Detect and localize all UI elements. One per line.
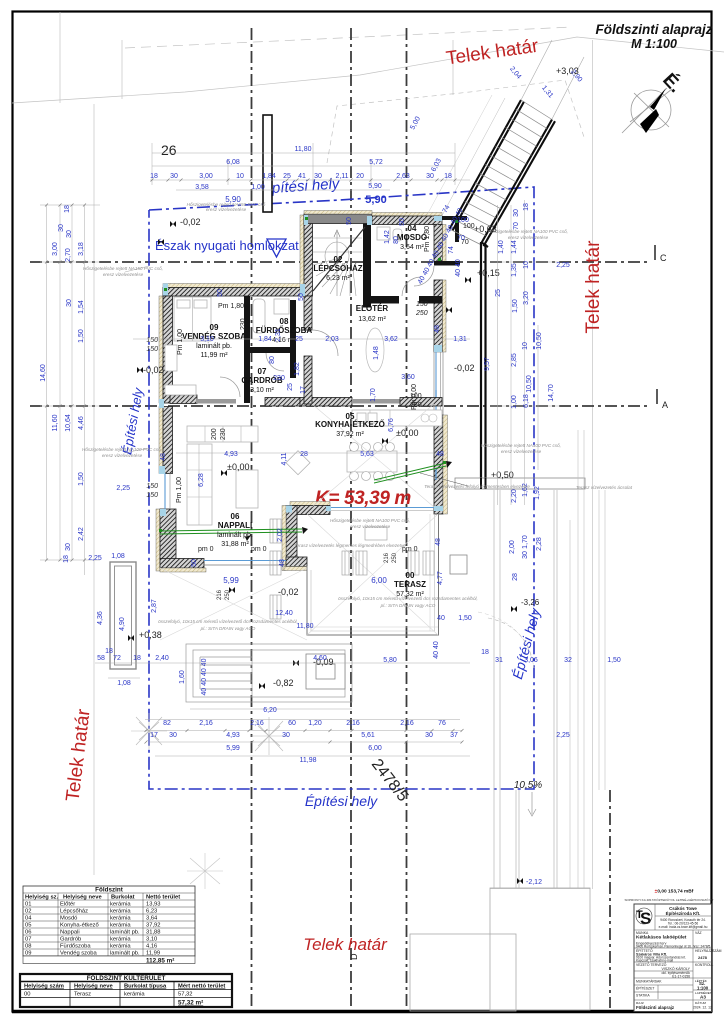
svg-text:10,5%: 10,5% xyxy=(514,780,542,791)
svg-text:eresz vízelvezetése: eresz vízelvezetése xyxy=(508,235,549,240)
svg-text:3,10 m²: 3,10 m² xyxy=(250,387,274,394)
svg-text:2,31: 2,31 xyxy=(275,328,282,342)
svg-text:Nettó terület: Nettó terület xyxy=(146,895,180,901)
svg-text:76: 76 xyxy=(438,720,446,727)
svg-text:ÉPÍTÉSZET: ÉPÍTÉSZET xyxy=(636,986,654,991)
svg-text:6,00: 6,00 xyxy=(368,745,382,752)
svg-text:1,40: 1,40 xyxy=(498,240,505,254)
svg-text:48: 48 xyxy=(279,559,286,567)
svg-text:10,50: 10,50 xyxy=(526,375,533,393)
svg-text:26: 26 xyxy=(161,142,177,158)
svg-text:2,63: 2,63 xyxy=(396,173,410,180)
svg-text:37: 37 xyxy=(450,732,458,739)
svg-text:FÜRDŐSZOBA: FÜRDŐSZOBA xyxy=(256,326,313,335)
svg-text:30: 30 xyxy=(170,173,178,180)
svg-text:kerámia: kerámia xyxy=(110,902,131,908)
svg-text:-0,02: -0,02 xyxy=(278,587,299,597)
svg-text:1,70: 1,70 xyxy=(522,535,529,549)
svg-text:48: 48 xyxy=(434,325,441,333)
svg-text:2,16: 2,16 xyxy=(250,720,264,727)
svg-text:00: 00 xyxy=(24,992,30,998)
svg-text:10: 10 xyxy=(523,261,530,269)
svg-text:TERASZ: TERASZ xyxy=(394,580,426,589)
svg-text:74: 74 xyxy=(448,246,455,254)
svg-text:06: 06 xyxy=(231,512,240,521)
svg-text:48: 48 xyxy=(160,453,167,461)
svg-text:kerámia: kerámia xyxy=(110,909,131,915)
svg-text:4,60: 4,60 xyxy=(313,655,327,662)
svg-text:Nappali: Nappali xyxy=(60,930,80,936)
svg-text:5,99: 5,99 xyxy=(226,745,240,752)
svg-text:1,50: 1,50 xyxy=(512,299,519,313)
svg-text:6,20: 6,20 xyxy=(263,707,277,714)
svg-text:+0,50: +0,50 xyxy=(491,470,514,480)
svg-text:150: 150 xyxy=(146,346,158,353)
svg-text:18: 18 xyxy=(444,173,452,180)
svg-text:Kapcsolt: szakhatni e-mail: Kapcsolt: szakhatni e-mail xyxy=(636,959,673,963)
svg-text:-3,26: -3,26 xyxy=(521,598,540,607)
svg-text:250: 250 xyxy=(410,402,422,409)
svg-text:41: 41 xyxy=(298,173,306,180)
svg-text:216: 216 xyxy=(384,552,390,563)
svg-text:Terasz vízelvezetés légmentes: Terasz vízelvezetés légmentes légmedrébe… xyxy=(294,543,406,548)
svg-text:48: 48 xyxy=(436,451,444,458)
svg-text:17: 17 xyxy=(150,732,158,739)
svg-text:+0,38: +0,38 xyxy=(139,630,162,640)
svg-text:100: 100 xyxy=(410,393,422,400)
svg-text:30: 30 xyxy=(425,732,433,739)
svg-text:57,32: 57,32 xyxy=(178,992,193,998)
svg-text:Hőszigetelésbe rejtett NA150 P: Hőszigetelésbe rejtett NA150 PVC cső, xyxy=(83,266,163,271)
svg-text:11,99 m²: 11,99 m² xyxy=(200,352,228,359)
svg-text:14,60: 14,60 xyxy=(40,364,47,382)
svg-text:4,90: 4,90 xyxy=(119,617,126,631)
svg-text:Terasz vízelvezetés ácsolat: Terasz vízelvezetés ácsolat xyxy=(576,485,633,490)
svg-text:30: 30 xyxy=(169,732,177,739)
svg-text:02: 02 xyxy=(25,909,31,915)
svg-text:VENDÉG SZOBA: VENDÉG SZOBA xyxy=(182,332,246,341)
svg-text:01: 01 xyxy=(25,902,31,908)
svg-text:KONTROLL: KONTROLL xyxy=(695,963,713,967)
svg-text:Észak nyugati homlokzat: Észak nyugati homlokzat xyxy=(155,238,299,253)
svg-text:12,40: 12,40 xyxy=(275,610,293,617)
svg-text:1,42: 1,42 xyxy=(384,230,391,244)
svg-text:18: 18 xyxy=(523,203,530,211)
svg-text:3,58: 3,58 xyxy=(195,184,209,191)
svg-text:eresz vízelvezetése: eresz vízelvezetése xyxy=(103,272,144,277)
svg-text:Pm 1,00: Pm 1,00 xyxy=(177,329,184,355)
svg-text:pm 0: pm 0 xyxy=(251,546,267,553)
svg-text:30: 30 xyxy=(65,543,72,551)
svg-text:6,18: 6,18 xyxy=(523,394,530,408)
svg-text:É1-17-0156: É1-17-0156 xyxy=(672,974,690,979)
svg-text:1,60: 1,60 xyxy=(179,670,186,684)
svg-text:82: 82 xyxy=(163,720,171,727)
svg-text:eresz vízelvezetése: eresz vízelvezetése xyxy=(501,449,542,454)
svg-text:50: 50 xyxy=(346,217,353,225)
svg-text:Terasz vízelvezetés lefolyó lé: Terasz vízelvezetés lefolyó légmentesben… xyxy=(424,484,530,489)
svg-text:6,00: 6,00 xyxy=(371,576,387,585)
svg-text:1,00: 1,00 xyxy=(511,395,518,409)
svg-text:Pm 1,80: Pm 1,80 xyxy=(424,226,431,252)
svg-text:18: 18 xyxy=(63,555,70,563)
svg-text:05: 05 xyxy=(25,923,31,929)
svg-text:11,80: 11,80 xyxy=(295,146,312,153)
svg-text:2,42: 2,42 xyxy=(78,527,85,541)
svg-text:07: 07 xyxy=(258,367,267,376)
svg-text:Hőszigetelésbe rejtett NA100 P: Hőszigetelésbe rejtett NA100 PVC cső, xyxy=(330,518,410,523)
svg-text:laminált pb.: laminált pb. xyxy=(110,951,140,957)
svg-text:Fürdőszoba: Fürdőszoba xyxy=(60,944,91,950)
svg-text:2,25: 2,25 xyxy=(556,262,570,269)
svg-text:Hőszigetelésbe rejtett NA100 P: Hőszigetelésbe rejtett NA100 PVC cső, xyxy=(488,229,568,234)
svg-text:230: 230 xyxy=(220,428,227,440)
svg-text:250: 250 xyxy=(225,589,231,600)
svg-text:4,11: 4,11 xyxy=(281,452,288,465)
svg-text:1,92: 1,92 xyxy=(534,486,541,500)
svg-text:48: 48 xyxy=(435,538,442,546)
svg-text:laminált pb.: laminált pb. xyxy=(217,532,253,539)
svg-text:150: 150 xyxy=(146,337,158,344)
svg-text:MUNKA: MUNKA xyxy=(636,931,649,935)
svg-text:30: 30 xyxy=(58,224,65,232)
svg-text:1,20: 1,20 xyxy=(308,720,322,727)
svg-text:Földszint: Földszint xyxy=(95,887,124,894)
svg-text:18: 18 xyxy=(64,205,71,213)
svg-text:-0,82: -0,82 xyxy=(273,678,294,688)
svg-text:KONYHA-ÉTKEZŐ: KONYHA-ÉTKEZŐ xyxy=(315,420,385,429)
svg-text:2,40: 2,40 xyxy=(155,655,169,662)
svg-text:6,28: 6,28 xyxy=(198,473,205,487)
svg-text:80: 80 xyxy=(393,236,400,244)
svg-text:2,25: 2,25 xyxy=(556,732,570,739)
svg-text:Pm 1,00: Pm 1,00 xyxy=(176,477,183,503)
svg-text:57,32 m²: 57,32 m² xyxy=(178,1000,203,1007)
svg-text:eresz vízelvezetése: eresz vízelvezetése xyxy=(102,453,143,458)
svg-text:5,72: 5,72 xyxy=(369,159,383,166)
svg-text:18: 18 xyxy=(150,173,158,180)
svg-text:2,25: 2,25 xyxy=(88,555,102,562)
svg-text:Mosdó: Mosdó xyxy=(60,916,77,922)
svg-text:72: 72 xyxy=(113,655,121,662)
svg-text:230: 230 xyxy=(240,318,247,330)
svg-text:DÁTUM: DÁTUM xyxy=(695,1001,706,1005)
svg-text:1,08: 1,08 xyxy=(117,680,131,687)
svg-text:11,80: 11,80 xyxy=(297,623,314,630)
svg-text:3,10: 3,10 xyxy=(146,937,157,943)
svg-text:-0,02: -0,02 xyxy=(143,365,164,375)
svg-text:5,90: 5,90 xyxy=(365,194,386,206)
svg-text:00: 00 xyxy=(406,571,415,580)
svg-text:1,35: 1,35 xyxy=(511,263,518,277)
svg-text:31: 31 xyxy=(495,657,503,664)
svg-text:37,92: 37,92 xyxy=(146,923,161,929)
svg-text:18: 18 xyxy=(105,648,113,655)
svg-text:06: 06 xyxy=(25,930,31,936)
svg-text:10,50: 10,50 xyxy=(536,332,543,350)
svg-text:Konyha-étkező: Konyha-étkező xyxy=(60,923,99,929)
svg-text:04: 04 xyxy=(25,916,32,922)
svg-text:Hőszigetelésbe rejtett NA100 P: Hőszigetelésbe rejtett NA100 PVC cső, xyxy=(481,443,561,448)
svg-text:04: 04 xyxy=(408,224,417,233)
svg-text:30: 30 xyxy=(282,732,290,739)
svg-text:31,88: 31,88 xyxy=(146,930,161,936)
svg-text:3,64 m²: 3,64 m² xyxy=(400,244,424,251)
svg-text:eresz vízelvezetése: eresz vízelvezetése xyxy=(350,524,391,529)
svg-text:2,16: 2,16 xyxy=(400,720,414,727)
svg-text:25: 25 xyxy=(283,173,291,180)
svg-text:31,88 m²: 31,88 m² xyxy=(221,541,249,548)
svg-text:10: 10 xyxy=(522,342,529,350)
svg-text:D: D xyxy=(349,953,359,960)
svg-text:Burkolat típusa: Burkolat típusa xyxy=(124,984,167,990)
svg-text:±0,00 153,74 mBf: ±0,00 153,74 mBf xyxy=(655,889,694,895)
svg-text:1,82: 1,82 xyxy=(294,362,301,376)
svg-text:11,98: 11,98 xyxy=(300,757,317,764)
svg-text:6,23: 6,23 xyxy=(146,909,157,915)
svg-text:13,93: 13,93 xyxy=(146,902,161,908)
svg-text:laminált pb.: laminált pb. xyxy=(196,343,232,350)
svg-text:9400 Roncskertvár, Pannonhegyi: 9400 Roncskertvár, Pannonhegyi út 16. hr… xyxy=(636,945,711,949)
svg-text:3,18: 3,18 xyxy=(78,242,85,256)
svg-text:±0,00: ±0,00 xyxy=(227,462,249,472)
svg-text:2,25: 2,25 xyxy=(116,485,130,492)
svg-text:150: 150 xyxy=(146,483,158,490)
svg-text:3,10: 3,10 xyxy=(200,336,214,343)
svg-text:1,50: 1,50 xyxy=(78,472,85,486)
svg-text:kerámia: kerámia xyxy=(110,944,131,950)
svg-text:A: A xyxy=(662,400,668,410)
svg-text:-0,02: -0,02 xyxy=(454,363,475,373)
svg-text:SOPRONYI KA 4817/KÖZTERÜYOL LE: SOPRONYI KA 4817/KÖZTERÜYOL LEHNÉ+GÉPKOC… xyxy=(624,897,713,902)
svg-text:2,16: 2,16 xyxy=(346,720,360,727)
svg-text:összefolyó, 10x15 cm méretű ví: összefolyó, 10x15 cm méretű vízelvezető … xyxy=(158,619,298,624)
svg-text:MUNKATÁRSAK: MUNKATÁRSAK xyxy=(636,980,662,984)
svg-text:1,50: 1,50 xyxy=(607,657,621,664)
svg-text:1,08: 1,08 xyxy=(111,553,125,560)
svg-text:4,93: 4,93 xyxy=(226,732,240,739)
svg-text:09: 09 xyxy=(210,323,219,332)
svg-text:3,06: 3,06 xyxy=(524,657,538,664)
svg-text:STATIKA: STATIKA xyxy=(636,994,650,998)
svg-text:40 40: 40 40 xyxy=(433,641,440,659)
svg-text:Helyiség neve: Helyiség neve xyxy=(63,895,102,901)
svg-text:Földszinti alaprajz: Földszinti alaprajz xyxy=(595,22,712,37)
svg-text:2,16: 2,16 xyxy=(199,720,213,727)
svg-text:60: 60 xyxy=(288,720,296,727)
svg-text:Terasz: Terasz xyxy=(74,992,91,998)
svg-text:28: 28 xyxy=(512,573,519,581)
svg-text:4,77: 4,77 xyxy=(437,571,444,585)
svg-text:5,63: 5,63 xyxy=(360,451,374,458)
svg-text:Vendég szoba: Vendég szoba xyxy=(60,951,98,957)
svg-text:10: 10 xyxy=(236,173,244,180)
svg-text:C: C xyxy=(660,253,667,263)
svg-text:08: 08 xyxy=(25,944,31,950)
svg-text:Építésziroda Kft.: Építésziroda Kft. xyxy=(666,911,701,916)
svg-text:5,90: 5,90 xyxy=(368,183,382,190)
svg-text:kerámia: kerámia xyxy=(110,923,131,929)
svg-text:pm 0: pm 0 xyxy=(198,546,214,553)
svg-text:2,02: 2,02 xyxy=(277,528,284,542)
svg-text:37,92 m²: 37,92 m² xyxy=(336,431,364,438)
svg-text:250: 250 xyxy=(392,552,398,563)
svg-text:Helyiség neve: Helyiség neve xyxy=(74,984,113,990)
svg-text:eresz vízelvezetése: eresz vízelvezetése xyxy=(206,207,247,212)
svg-text:25: 25 xyxy=(295,336,303,343)
svg-text:40 40 40 40: 40 40 40 40 xyxy=(201,658,208,695)
svg-text:1,50: 1,50 xyxy=(458,615,472,622)
svg-text:NAPPALI: NAPPALI xyxy=(218,521,253,530)
svg-text:ELŐTÉR: ELŐTÉR xyxy=(356,304,389,313)
svg-text:30: 30 xyxy=(426,173,434,180)
svg-text:4,36: 4,36 xyxy=(97,611,104,625)
svg-text:pl.: SITA DRAIN vagy ACO: pl.: SITA DRAIN vagy ACO xyxy=(200,626,256,631)
svg-text:1,84: 1,84 xyxy=(258,336,272,343)
svg-text:20: 20 xyxy=(356,173,364,180)
svg-text:Építési hely: Építési hely xyxy=(305,793,378,809)
svg-text:-2,12: -2,12 xyxy=(526,879,542,886)
svg-text:kerámia: kerámia xyxy=(124,992,145,998)
svg-text:Telek határ: Telek határ xyxy=(583,240,604,334)
svg-text:3,00: 3,00 xyxy=(52,242,59,256)
svg-text:1,84: 1,84 xyxy=(262,173,276,180)
svg-text:112,85 m²: 112,85 m² xyxy=(146,957,174,964)
svg-text:09: 09 xyxy=(25,951,31,957)
svg-text:17: 17 xyxy=(300,386,307,394)
svg-text:80: 80 xyxy=(269,356,276,364)
svg-text:Helyiség sz.: Helyiség sz. xyxy=(25,895,59,901)
svg-text:3,60: 3,60 xyxy=(401,374,415,381)
svg-text:Kétlakásos lakóépület: Kétlakásos lakóépület xyxy=(636,935,687,941)
svg-text:2,28: 2,28 xyxy=(536,537,543,551)
svg-text:1,31: 1,31 xyxy=(453,336,467,343)
svg-text:Mért nettó terület: Mért nettó terület xyxy=(178,984,225,990)
svg-text:08: 08 xyxy=(280,317,289,326)
svg-text:T: T xyxy=(636,909,643,921)
svg-text:40: 40 xyxy=(437,615,445,622)
svg-text:10,64: 10,64 xyxy=(65,414,72,432)
svg-text:11,60: 11,60 xyxy=(52,414,59,431)
svg-text:5,61: 5,61 xyxy=(361,732,375,739)
svg-text:Gardrób: Gardrób xyxy=(60,937,81,943)
svg-text:2,03: 2,03 xyxy=(325,336,339,343)
svg-text:30: 30 xyxy=(513,209,520,217)
svg-text:07: 07 xyxy=(25,937,31,943)
svg-text:M 1:100: M 1:100 xyxy=(631,37,677,51)
svg-text:2,00: 2,00 xyxy=(509,540,516,554)
svg-text:pl.: SITA DRAIN vagy ACO: pl.: SITA DRAIN vagy ACO xyxy=(380,603,436,608)
svg-text:13,62 m²: 13,62 m² xyxy=(358,316,386,323)
svg-text:3,64: 3,64 xyxy=(146,916,158,922)
svg-text:18: 18 xyxy=(133,655,141,662)
svg-text:1,44: 1,44 xyxy=(511,240,518,254)
svg-text:2,87: 2,87 xyxy=(151,599,158,613)
svg-text:28: 28 xyxy=(300,451,308,458)
svg-text:kerámia: kerámia xyxy=(110,937,131,943)
svg-text:6,08: 6,08 xyxy=(226,159,240,166)
svg-text:50: 50 xyxy=(191,559,198,567)
svg-text:02: 02 xyxy=(334,255,343,264)
svg-text:2,85: 2,85 xyxy=(511,353,518,367)
svg-text:±0,00: ±0,00 xyxy=(396,428,418,438)
svg-text:Földszinti alaprajz: Földszinti alaprajz xyxy=(636,1005,675,1010)
svg-text:30: 30 xyxy=(314,173,322,180)
svg-text:Helyiség szám: Helyiség szám xyxy=(24,984,64,990)
svg-text:Pm 1,80: Pm 1,80 xyxy=(218,303,244,310)
svg-text:30: 30 xyxy=(522,551,529,559)
svg-text:25: 25 xyxy=(287,383,294,391)
svg-text:MOSDÓ: MOSDÓ xyxy=(397,233,427,242)
svg-text:250: 250 xyxy=(415,310,428,317)
svg-text:1,48: 1,48 xyxy=(373,346,380,360)
svg-text:2,11: 2,11 xyxy=(335,173,348,180)
svg-text:Burkolat: Burkolat xyxy=(111,895,135,901)
svg-text:FÖLDSZINT KÜLTERÜLET: FÖLDSZINT KÜLTERÜLET xyxy=(87,973,166,982)
svg-text:9,57: 9,57 xyxy=(484,357,491,371)
svg-text:3,00: 3,00 xyxy=(199,173,213,180)
svg-text:LÉPCSŐHÁZ: LÉPCSŐHÁZ xyxy=(313,264,362,273)
svg-text:2,20: 2,20 xyxy=(511,489,518,503)
svg-text:30: 30 xyxy=(66,299,73,307)
svg-text:50: 50 xyxy=(298,293,305,301)
svg-text:6,76: 6,76 xyxy=(388,418,395,432)
svg-text:11,99: 11,99 xyxy=(146,951,160,957)
svg-text:1,00: 1,00 xyxy=(251,184,265,191)
svg-text:4,93: 4,93 xyxy=(224,451,238,458)
svg-text:30: 30 xyxy=(66,230,73,238)
svg-text:150: 150 xyxy=(416,301,428,308)
svg-text:4,46: 4,46 xyxy=(78,416,85,430)
svg-text:230: 230 xyxy=(273,375,285,382)
svg-text:2024. 12. 12.: 2024. 12. 12. xyxy=(693,1006,713,1010)
svg-text:Előtér: Előtér xyxy=(60,902,75,908)
svg-text:50: 50 xyxy=(399,218,406,226)
svg-text:HELYRAJZSZÁM: HELYRAJZSZÁM xyxy=(695,949,722,953)
svg-text:2478: 2478 xyxy=(698,955,708,960)
svg-text:összefolyó, 10x15 cm méretű ví: összefolyó, 10x15 cm méretű vízelvezető … xyxy=(338,596,478,601)
svg-text:3,20: 3,20 xyxy=(523,291,530,305)
svg-text:150: 150 xyxy=(146,492,158,499)
svg-text:1,50: 1,50 xyxy=(78,329,85,343)
svg-text:32: 32 xyxy=(564,657,572,664)
svg-text:14,70: 14,70 xyxy=(548,384,555,402)
svg-text:laminált pb.: laminált pb. xyxy=(110,930,140,936)
svg-text:Lépcsőház: Lépcsőház xyxy=(60,909,88,915)
svg-text:3,62: 3,62 xyxy=(384,336,398,343)
svg-text:5,99: 5,99 xyxy=(223,576,239,585)
svg-text:-0,02: -0,02 xyxy=(180,217,201,227)
svg-text:+0,15: +0,15 xyxy=(477,268,500,278)
svg-text:2,70: 2,70 xyxy=(65,248,72,262)
svg-text:1,54: 1,54 xyxy=(78,300,85,314)
svg-text:1:100: 1:100 xyxy=(697,986,709,991)
svg-text:Telek határ: Telek határ xyxy=(303,935,388,954)
svg-text:70: 70 xyxy=(457,235,465,242)
svg-text:216: 216 xyxy=(217,589,223,600)
svg-text:6,23 m²: 6,23 m² xyxy=(326,275,350,282)
svg-text:Hőszigetelésbe rejtett NA100 P: Hőszigetelésbe rejtett NA100 PVC cső, xyxy=(82,447,162,452)
svg-text:1,70: 1,70 xyxy=(370,388,377,402)
svg-text:25: 25 xyxy=(495,289,502,297)
svg-text:18: 18 xyxy=(481,649,489,656)
svg-text:e-mail: iroda.cs.towe.kft@gmai: e-mail: iroda.cs.towe.kft@gmail.hu xyxy=(659,925,708,929)
svg-text:50: 50 xyxy=(217,289,224,297)
svg-text:200: 200 xyxy=(211,428,218,440)
svg-text:100: 100 xyxy=(463,223,475,230)
svg-text:kerámia: kerámia xyxy=(110,916,131,922)
svg-text:58: 58 xyxy=(97,655,105,662)
